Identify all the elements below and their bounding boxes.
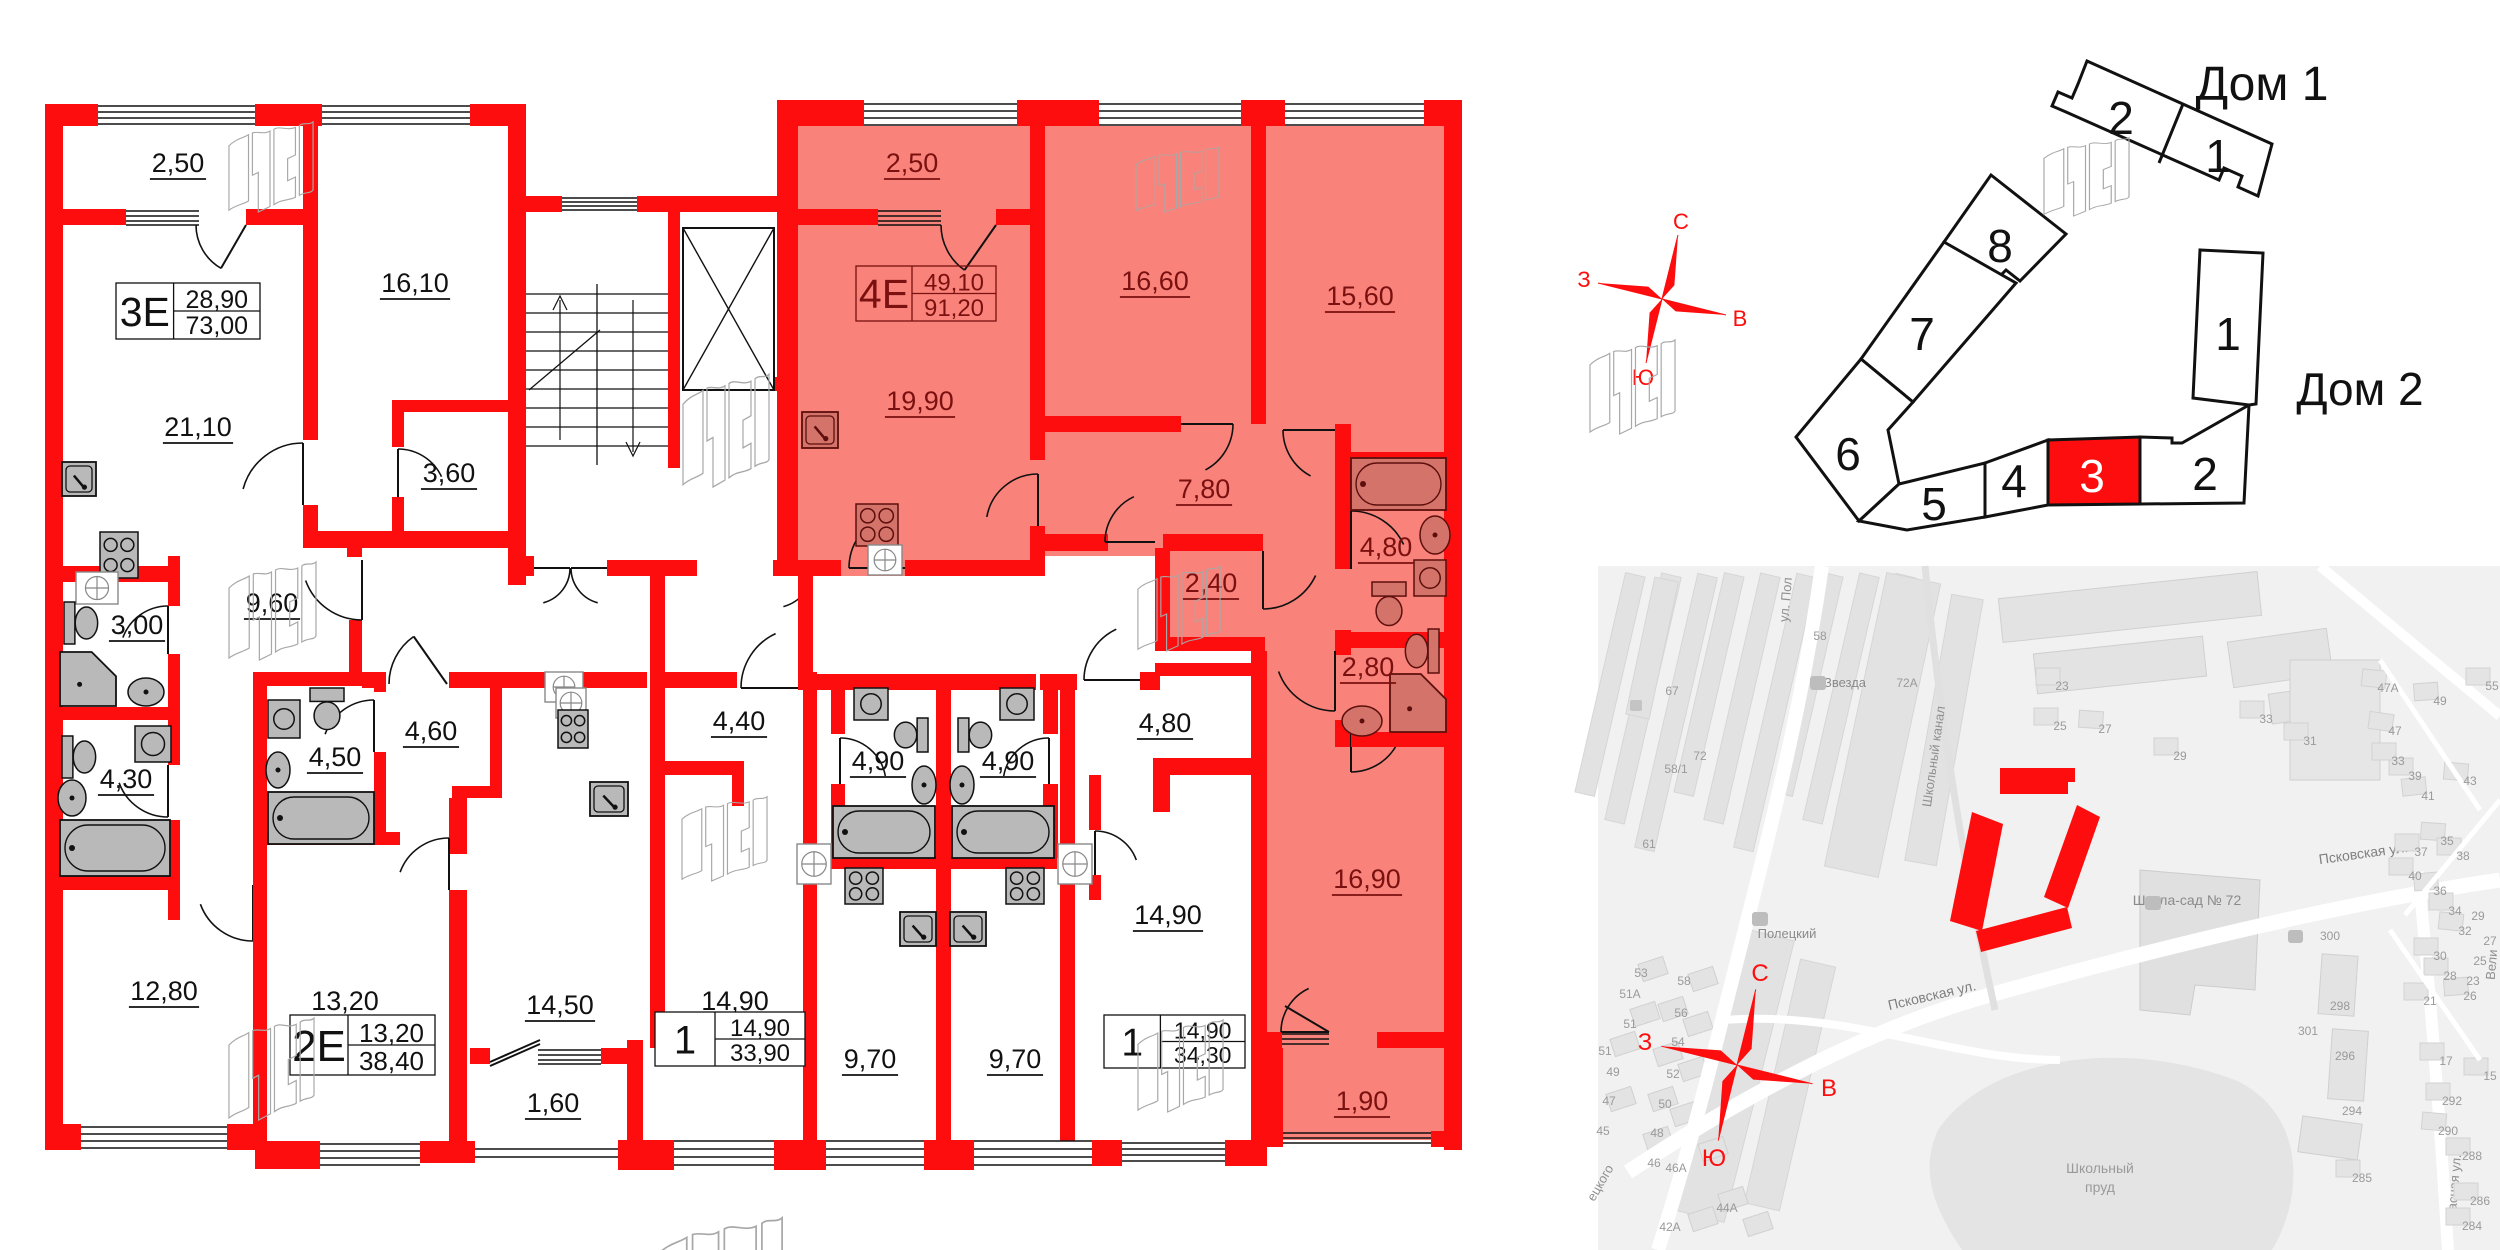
svg-text:30: 30: [2433, 949, 2447, 963]
svg-text:51А: 51А: [1619, 987, 1640, 1001]
svg-text:29: 29: [2173, 749, 2187, 763]
svg-text:2: 2: [2108, 92, 2134, 144]
svg-text:50: 50: [1658, 1097, 1672, 1111]
svg-text:294: 294: [2342, 1104, 2362, 1118]
svg-text:28,90: 28,90: [186, 286, 249, 314]
svg-text:46: 46: [1647, 1156, 1661, 1170]
svg-text:Дом 1: Дом 1: [2196, 58, 2329, 111]
svg-text:Ю: Ю: [1702, 1145, 1726, 1172]
svg-text:21: 21: [2423, 994, 2437, 1008]
svg-text:47: 47: [2388, 724, 2402, 738]
svg-text:4,90: 4,90: [982, 746, 1035, 776]
svg-text:73,00: 73,00: [186, 312, 249, 340]
svg-text:32: 32: [2458, 924, 2472, 938]
svg-text:Дом 2: Дом 2: [2296, 363, 2423, 415]
svg-text:Школьный: Школьный: [2066, 1160, 2134, 1176]
svg-text:298: 298: [2330, 999, 2350, 1013]
svg-text:29: 29: [2471, 909, 2485, 923]
svg-text:91,20: 91,20: [924, 295, 984, 322]
svg-text:45: 45: [1596, 1124, 1610, 1138]
svg-text:4: 4: [2001, 455, 2027, 507]
svg-text:15: 15: [2483, 1069, 2497, 1083]
svg-text:1: 1: [674, 1018, 696, 1062]
svg-text:40: 40: [2408, 869, 2422, 883]
svg-text:47: 47: [1602, 1094, 1616, 1108]
svg-text:38,40: 38,40: [359, 1046, 424, 1076]
svg-text:49: 49: [2433, 694, 2447, 708]
svg-text:З: З: [1577, 267, 1590, 292]
svg-text:25: 25: [2473, 954, 2487, 968]
svg-text:5: 5: [1921, 478, 1947, 530]
svg-text:1: 1: [2205, 130, 2231, 182]
svg-text:4,50: 4,50: [309, 742, 362, 772]
svg-text:23: 23: [2055, 679, 2069, 693]
svg-text:3Е: 3Е: [120, 289, 170, 335]
svg-text:38: 38: [2456, 849, 2470, 863]
svg-text:16,10: 16,10: [381, 268, 449, 298]
svg-text:2,50: 2,50: [886, 148, 939, 178]
svg-text:300: 300: [2320, 929, 2340, 943]
svg-text:3: 3: [2079, 450, 2105, 502]
svg-text:15,60: 15,60: [1326, 281, 1394, 311]
svg-text:4Е: 4Е: [859, 271, 909, 317]
svg-text:72А: 72А: [1896, 676, 1917, 690]
svg-text:4,80: 4,80: [1139, 708, 1192, 738]
svg-text:8: 8: [1987, 220, 2013, 272]
svg-text:12,80: 12,80: [130, 976, 198, 1006]
svg-text:14,90: 14,90: [730, 1015, 790, 1042]
svg-text:61: 61: [1642, 837, 1656, 851]
svg-text:14,50: 14,50: [526, 990, 594, 1020]
svg-text:В: В: [1821, 1075, 1837, 1102]
svg-text:53: 53: [1634, 966, 1648, 980]
svg-text:301: 301: [2298, 1024, 2318, 1038]
svg-text:28: 28: [2443, 969, 2457, 983]
svg-text:2,50: 2,50: [152, 148, 205, 178]
svg-text:С: С: [1673, 209, 1689, 234]
svg-text:27: 27: [2098, 722, 2112, 736]
svg-text:4,80: 4,80: [1360, 532, 1413, 562]
svg-text:26: 26: [2463, 989, 2477, 1003]
svg-text:52: 52: [1666, 1067, 1680, 1081]
svg-text:288: 288: [2462, 1149, 2482, 1163]
svg-text:2: 2: [2192, 448, 2218, 500]
svg-text:6: 6: [1835, 428, 1861, 480]
svg-text:31: 31: [2303, 734, 2317, 748]
svg-text:42А: 42А: [1659, 1220, 1680, 1234]
svg-text:19,90: 19,90: [886, 386, 954, 416]
svg-text:16,90: 16,90: [1333, 864, 1401, 894]
svg-text:43: 43: [2463, 774, 2477, 788]
svg-text:285: 285: [2352, 1171, 2372, 1185]
svg-text:72: 72: [1693, 749, 1707, 763]
svg-text:37: 37: [2414, 845, 2428, 859]
svg-text:4,60: 4,60: [405, 716, 458, 746]
svg-text:2,80: 2,80: [1342, 652, 1395, 682]
svg-text:296: 296: [2335, 1049, 2355, 1063]
svg-text:33: 33: [2391, 754, 2405, 768]
svg-text:49,10: 49,10: [924, 270, 984, 297]
svg-text:34: 34: [2448, 904, 2462, 918]
svg-text:49: 49: [1606, 1065, 1620, 1079]
svg-text:13,20: 13,20: [359, 1018, 424, 1048]
svg-text:З: З: [1638, 1029, 1653, 1056]
svg-text:25: 25: [2053, 719, 2067, 733]
svg-text:1: 1: [2215, 308, 2241, 360]
svg-text:55: 55: [2485, 679, 2499, 693]
svg-text:4,30: 4,30: [100, 764, 153, 794]
svg-text:36: 36: [2433, 884, 2447, 898]
svg-text:290: 290: [2438, 1124, 2458, 1138]
svg-text:58: 58: [1813, 629, 1827, 643]
svg-text:С: С: [1751, 960, 1768, 987]
svg-text:7: 7: [1909, 308, 1935, 360]
svg-text:284: 284: [2462, 1219, 2482, 1233]
svg-text:33: 33: [2259, 712, 2273, 726]
svg-text:46А: 46А: [1665, 1161, 1686, 1175]
svg-text:58/1: 58/1: [1664, 762, 1688, 776]
svg-text:48: 48: [1650, 1126, 1664, 1140]
svg-text:Звезда: Звезда: [1824, 675, 1867, 690]
svg-text:В: В: [1733, 306, 1748, 331]
svg-text:13,20: 13,20: [311, 986, 379, 1016]
svg-text:3,60: 3,60: [423, 458, 476, 488]
svg-text:1,60: 1,60: [527, 1088, 580, 1118]
svg-text:9,70: 9,70: [989, 1044, 1042, 1074]
svg-text:9,70: 9,70: [844, 1044, 897, 1074]
svg-text:27: 27: [2483, 934, 2497, 948]
svg-text:39: 39: [2408, 769, 2422, 783]
svg-text:17: 17: [2439, 1054, 2453, 1068]
svg-text:7,80: 7,80: [1178, 474, 1231, 504]
svg-text:33,90: 33,90: [730, 1040, 790, 1067]
svg-text:58: 58: [1677, 974, 1691, 988]
svg-text:56: 56: [1674, 1006, 1688, 1020]
svg-text:21,10: 21,10: [164, 412, 232, 442]
svg-text:44А: 44А: [1716, 1201, 1737, 1215]
svg-text:14,90: 14,90: [1134, 900, 1202, 930]
svg-text:16,60: 16,60: [1121, 266, 1189, 296]
svg-text:47А: 47А: [2377, 681, 2398, 695]
svg-text:67: 67: [1665, 684, 1679, 698]
svg-text:Полецкий: Полецкий: [1758, 926, 1817, 941]
svg-text:3,00: 3,00: [111, 610, 164, 640]
svg-text:51: 51: [1598, 1044, 1612, 1058]
svg-text:23: 23: [2466, 974, 2480, 988]
svg-text:4,90: 4,90: [852, 746, 905, 776]
svg-text:1,90: 1,90: [1336, 1086, 1389, 1116]
svg-text:35: 35: [2440, 834, 2454, 848]
svg-text:41: 41: [2421, 789, 2435, 803]
svg-text:54: 54: [1671, 1035, 1685, 1049]
svg-text:51: 51: [1623, 1017, 1637, 1031]
svg-text:292: 292: [2442, 1094, 2462, 1108]
svg-text:4,40: 4,40: [713, 706, 766, 736]
svg-text:286: 286: [2470, 1194, 2490, 1208]
svg-text:пруд: пруд: [2085, 1179, 2115, 1195]
